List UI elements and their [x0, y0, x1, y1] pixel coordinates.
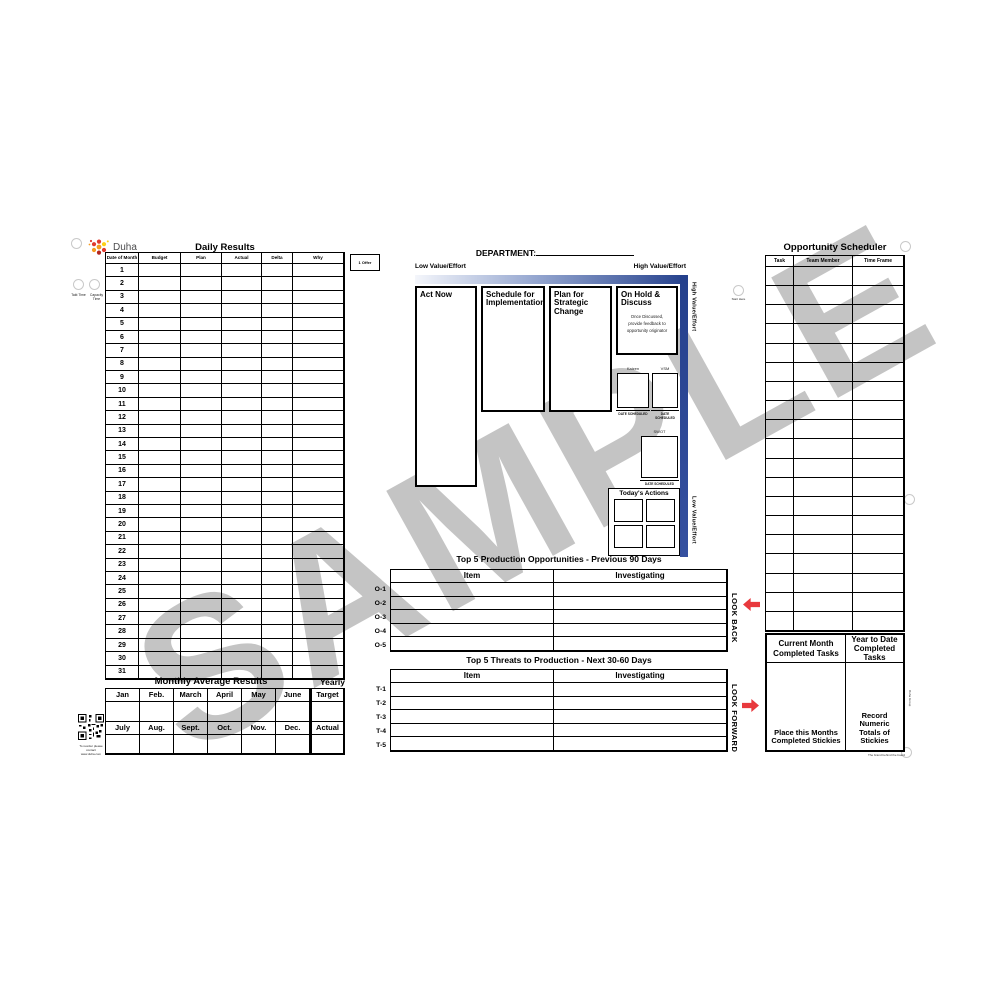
year-to-date-footer: Record Numeric Totals of Stickies — [846, 718, 903, 750]
hole-label-right: Capacity Time — [86, 293, 107, 302]
entry-cell — [181, 465, 222, 478]
entry-cell — [262, 505, 293, 518]
date-cell: 25 — [106, 585, 139, 598]
entry-cell — [181, 625, 222, 638]
date-cell: 22 — [106, 545, 139, 558]
entry-cell — [766, 439, 794, 458]
entry-cell — [222, 599, 262, 612]
entry-cell — [293, 451, 344, 464]
entry-cell — [293, 625, 344, 638]
entry-cell — [853, 382, 904, 401]
entry-cell — [139, 652, 181, 665]
entry-cell — [222, 612, 262, 625]
entry-cell — [293, 291, 344, 304]
date-cell: 5 — [106, 318, 139, 331]
entry-cell — [853, 516, 904, 535]
target-header: Target — [310, 689, 344, 702]
todays-actions-panel: Today's Actions — [608, 488, 680, 556]
entry-cell — [222, 585, 262, 598]
scheduler-table: TaskTeam MemberTime Frame — [765, 255, 905, 632]
swot-label: SWOT — [640, 430, 679, 434]
sample-board-page: SAMPLE Duha Daily Results Date of MonthB… — [0, 0, 1000, 1000]
entry-cell — [262, 304, 293, 317]
entry-cell — [853, 363, 904, 382]
high-value-effort-label: High Value/Effort — [540, 264, 686, 271]
entry-cell — [554, 637, 727, 651]
entry-cell — [853, 344, 904, 363]
entry-cell — [106, 702, 140, 722]
entry-cell — [174, 735, 208, 754]
threats-table: ItemInvestigating — [390, 669, 728, 752]
entry-cell — [222, 277, 262, 290]
entry-cell — [262, 518, 293, 531]
entry-cell — [139, 425, 181, 438]
month-header: June — [276, 689, 310, 702]
entry-cell — [181, 371, 222, 384]
entry-cell — [222, 518, 262, 531]
date-cell: 28 — [106, 625, 139, 638]
threats-title: Top 5 Threats to Production - Next 30-60… — [390, 656, 728, 665]
entry-cell — [181, 264, 222, 277]
entry-cell — [293, 532, 344, 545]
entry-cell — [262, 277, 293, 290]
action-slot — [646, 499, 675, 522]
year-to-date-header: Year to Date Completed Tasks — [846, 635, 903, 663]
entry-cell — [181, 344, 222, 357]
entry-cell — [853, 478, 904, 497]
entry-cell — [222, 451, 262, 464]
department-blank-line — [536, 247, 634, 256]
entry-cell — [262, 572, 293, 585]
column-header: Why — [293, 253, 344, 264]
entry-cell — [222, 559, 262, 572]
entry-cell — [293, 438, 344, 451]
entry-cell — [391, 724, 554, 738]
offer-box-label: 1 Offer — [359, 260, 372, 265]
entry-cell — [276, 702, 310, 722]
entry-cell — [293, 277, 344, 290]
entry-cell — [262, 384, 293, 397]
date-cell: 7 — [106, 344, 139, 357]
entry-cell — [181, 478, 222, 491]
entry-cell — [222, 411, 262, 424]
date-cell: 1 — [106, 264, 139, 277]
action-slot — [646, 525, 675, 548]
entry-cell — [554, 697, 727, 711]
date-cell: 16 — [106, 465, 139, 478]
date-cell: 30 — [106, 652, 139, 665]
row-label: T-4 — [366, 724, 386, 738]
hole-punch — [904, 494, 915, 505]
date-cell: 17 — [106, 478, 139, 491]
entry-cell — [181, 331, 222, 344]
entry-cell — [293, 599, 344, 612]
entry-cell — [222, 304, 262, 317]
entry-cell — [181, 304, 222, 317]
entry-cell — [293, 505, 344, 518]
entry-cell — [139, 518, 181, 531]
hole-punch — [89, 279, 100, 290]
entry-cell — [766, 535, 794, 554]
entry-cell — [181, 612, 222, 625]
date-cell: 23 — [106, 559, 139, 572]
entry-cell — [181, 451, 222, 464]
yearly-label: Yearly — [313, 677, 345, 687]
investigating-column-header: Investigating — [554, 570, 727, 583]
entry-cell — [174, 702, 208, 722]
monthly-average-title: Monthly Average Results — [105, 677, 317, 687]
qr-code-icon — [78, 714, 104, 740]
entry-cell — [139, 291, 181, 304]
entry-cell — [222, 358, 262, 371]
entry-cell — [181, 599, 222, 612]
entry-cell — [139, 438, 181, 451]
entry-cell — [794, 420, 853, 439]
entry-cell — [181, 572, 222, 585]
effort-vertical-bar — [680, 275, 688, 557]
entry-cell — [222, 505, 262, 518]
swot-date-scheduled: DATE SCHEDULED — [640, 480, 679, 486]
entry-cell — [276, 735, 310, 754]
actual-header: Actual — [310, 722, 344, 735]
entry-cell — [222, 425, 262, 438]
swot-box — [641, 436, 678, 478]
entry-cell — [139, 612, 181, 625]
column-header: Date of Month — [106, 253, 139, 264]
entry-cell — [293, 344, 344, 357]
entry-cell — [293, 371, 344, 384]
entry-cell — [139, 451, 181, 464]
kaizen-box — [617, 373, 649, 408]
entry-cell — [794, 286, 853, 305]
column-header: Plan — [181, 253, 222, 264]
entry-cell — [181, 384, 222, 397]
vsm-box — [652, 373, 678, 408]
daily-results-table: Date of MonthBudgetPlanActualDeltaWhy123… — [105, 252, 345, 680]
entry-cell — [262, 625, 293, 638]
entry-cell — [766, 497, 794, 516]
threats-row-labels: T-1T-2T-3T-4T-5 — [366, 682, 386, 752]
date-cell: 19 — [106, 505, 139, 518]
entry-cell — [262, 331, 293, 344]
entry-cell — [139, 572, 181, 585]
row-label: T-3 — [366, 710, 386, 724]
entry-cell — [139, 304, 181, 317]
date-cell: 26 — [106, 599, 139, 612]
entry-cell — [222, 625, 262, 638]
entry-cell — [853, 574, 904, 593]
month-header: April — [208, 689, 242, 702]
entry-cell — [262, 344, 293, 357]
hole-punch — [733, 285, 744, 296]
entry-cell — [794, 459, 853, 478]
month-header: Oct. — [208, 722, 242, 735]
entry-cell — [181, 411, 222, 424]
entry-cell — [262, 291, 293, 304]
look-back-arrow-icon — [743, 598, 760, 611]
current-month-area — [767, 663, 846, 718]
entry-cell — [181, 358, 222, 371]
entry-cell — [222, 344, 262, 357]
entry-cell — [222, 438, 262, 451]
entry-cell — [794, 305, 853, 324]
entry-cell — [766, 344, 794, 363]
entry-cell — [222, 331, 262, 344]
quadrant-act-now: Act Now — [415, 286, 477, 487]
opportunities-table: ItemInvestigating — [390, 569, 728, 652]
month-header: Aug. — [140, 722, 174, 735]
row-label: O-5 — [366, 638, 386, 652]
entry-cell — [766, 574, 794, 593]
row-label: O-2 — [366, 596, 386, 610]
entry-cell — [766, 305, 794, 324]
entry-cell — [794, 554, 853, 573]
month-header: July — [106, 722, 140, 735]
quadrant-schedule: Schedule for Implementation — [481, 286, 545, 412]
vsm-date-scheduled: DATE SCHEDULED — [651, 410, 679, 420]
date-cell: 12 — [106, 411, 139, 424]
entry-cell — [140, 702, 174, 722]
year-to-date-area — [846, 663, 903, 718]
entry-cell — [794, 324, 853, 343]
entry-cell — [554, 583, 727, 597]
entry-cell — [853, 612, 904, 631]
entry-cell — [222, 532, 262, 545]
entry-cell — [222, 572, 262, 585]
entry-cell — [139, 532, 181, 545]
column-header: Budget — [139, 253, 181, 264]
entry-cell — [139, 264, 181, 277]
entry-cell — [222, 465, 262, 478]
quadrant-plan-title: Plan for Strategic Change — [554, 291, 607, 316]
entry-cell — [222, 384, 262, 397]
row-label: T-2 — [366, 696, 386, 710]
entry-cell — [293, 559, 344, 572]
date-cell: 20 — [106, 518, 139, 531]
entry-cell — [293, 304, 344, 317]
offer-box: 1 Offer — [350, 254, 380, 271]
entry-cell — [766, 612, 794, 631]
column-header: Time Frame — [853, 256, 904, 267]
entry-cell — [293, 545, 344, 558]
month-header: March — [174, 689, 208, 702]
hole-punch — [73, 279, 84, 290]
entry-cell — [140, 735, 174, 754]
entry-cell — [181, 398, 222, 411]
quadrant-on-hold-note: Once Discussed, provide feedback to oppo… — [621, 313, 673, 335]
entry-cell — [139, 639, 181, 652]
entry-cell — [262, 478, 293, 491]
entry-cell — [853, 305, 904, 324]
department-label: DEPARTMENT: — [476, 248, 536, 258]
entry-cell — [391, 624, 554, 638]
opportunities-title: Top 5 Production Opportunities - Previou… — [390, 555, 728, 564]
quadrant-act-now-title: Act Now — [420, 291, 472, 299]
date-cell: 11 — [106, 398, 139, 411]
action-slot — [614, 525, 643, 548]
entry-cell — [766, 516, 794, 535]
entry-cell — [293, 652, 344, 665]
low-value-effort-label: Low Value/Effort — [415, 264, 466, 271]
date-cell: 6 — [106, 331, 139, 344]
entry-cell — [181, 492, 222, 505]
entry-cell — [222, 652, 262, 665]
quadrant-plan: Plan for Strategic Change — [549, 286, 612, 412]
kaizen-label: Kaizen — [616, 367, 650, 371]
entry-cell — [794, 574, 853, 593]
opportunities-row-labels: O-1O-2O-3O-4O-5 — [366, 582, 386, 652]
entry-cell — [262, 612, 293, 625]
entry-cell — [139, 318, 181, 331]
entry-cell — [181, 505, 222, 518]
entry-cell — [794, 344, 853, 363]
entry-cell — [766, 324, 794, 343]
row-label: O-4 — [366, 624, 386, 638]
side-high-value-label: High Value/Effort — [690, 282, 696, 334]
entry-cell — [262, 318, 293, 331]
date-cell: 24 — [106, 572, 139, 585]
date-cell: 29 — [106, 639, 139, 652]
row-label: T-1 — [366, 682, 386, 696]
entry-cell — [262, 358, 293, 371]
entry-cell — [391, 610, 554, 624]
entry-cell — [391, 683, 554, 697]
entry-cell — [794, 267, 853, 286]
entry-cell — [262, 492, 293, 505]
entry-cell — [794, 516, 853, 535]
entry-cell — [766, 401, 794, 420]
entry-cell — [853, 554, 904, 573]
entry-cell — [262, 425, 293, 438]
entry-cell — [222, 545, 262, 558]
month-header: Jan — [106, 689, 140, 702]
entry-cell — [181, 291, 222, 304]
month-header: Dec. — [276, 722, 310, 735]
entry-cell — [262, 438, 293, 451]
entry-cell — [391, 710, 554, 724]
entry-cell — [139, 505, 181, 518]
entry-cell — [139, 625, 181, 638]
date-cell: 4 — [106, 304, 139, 317]
entry-cell — [181, 532, 222, 545]
month-header: May — [242, 689, 276, 702]
entry-cell — [139, 358, 181, 371]
entry-cell — [853, 286, 904, 305]
current-month-header: Current Month Completed Tasks — [767, 635, 846, 663]
entry-cell — [853, 535, 904, 554]
row-label: O-1 — [366, 582, 386, 596]
entry-cell — [181, 639, 222, 652]
entry-cell — [554, 724, 727, 738]
bottom-note: The brand behind the board — [800, 754, 905, 757]
entry-cell — [310, 702, 344, 722]
entry-cell — [222, 291, 262, 304]
entry-cell — [554, 597, 727, 611]
item-column-header: Item — [391, 670, 554, 683]
entry-cell — [208, 702, 242, 722]
entry-cell — [554, 683, 727, 697]
department-line: DEPARTMENT: — [430, 243, 680, 261]
entry-cell — [853, 401, 904, 420]
current-month-footer: Place this Months Completed Stickies — [767, 718, 846, 750]
date-cell: 27 — [106, 612, 139, 625]
entry-cell — [222, 264, 262, 277]
entry-cell — [222, 639, 262, 652]
entry-cell — [293, 358, 344, 371]
entry-cell — [139, 545, 181, 558]
entry-cell — [181, 438, 222, 451]
start-here-label: Start Here — [729, 298, 748, 302]
entry-cell — [391, 583, 554, 597]
action-slot — [614, 499, 643, 522]
look-forward-arrow-icon — [742, 699, 759, 712]
entry-cell — [293, 639, 344, 652]
entry-cell — [139, 411, 181, 424]
entry-cell — [310, 735, 344, 754]
entry-cell — [293, 331, 344, 344]
todays-actions-grid — [609, 499, 679, 548]
row-label: O-3 — [366, 610, 386, 624]
entry-cell — [293, 318, 344, 331]
entry-cell — [794, 593, 853, 612]
entry-cell — [222, 398, 262, 411]
entry-cell — [853, 324, 904, 343]
row-label: T-5 — [366, 738, 386, 752]
entry-cell — [794, 401, 853, 420]
entry-cell — [139, 492, 181, 505]
entry-cell — [766, 286, 794, 305]
column-header: Delta — [262, 253, 293, 264]
column-header: Task — [766, 256, 794, 267]
scheduler-title: Opportunity Scheduler — [765, 243, 905, 253]
todays-actions-title: Today's Actions — [609, 490, 679, 497]
entry-cell — [181, 545, 222, 558]
side-note: Duha Group — [908, 690, 911, 706]
entry-cell — [794, 497, 853, 516]
entry-cell — [853, 459, 904, 478]
date-cell: 9 — [106, 371, 139, 384]
entry-cell — [139, 478, 181, 491]
entry-cell — [181, 425, 222, 438]
entry-cell — [222, 371, 262, 384]
value-gradient-bar — [415, 275, 688, 284]
entry-cell — [293, 411, 344, 424]
entry-cell — [242, 735, 276, 754]
entry-cell — [262, 451, 293, 464]
entry-cell — [181, 518, 222, 531]
entry-cell — [853, 420, 904, 439]
entry-cell — [794, 439, 853, 458]
date-cell: 10 — [106, 384, 139, 397]
entry-cell — [262, 545, 293, 558]
entry-cell — [139, 559, 181, 572]
entry-cell — [139, 465, 181, 478]
entry-cell — [139, 398, 181, 411]
entry-cell — [293, 492, 344, 505]
entry-cell — [181, 318, 222, 331]
entry-cell — [262, 264, 293, 277]
date-cell: 14 — [106, 438, 139, 451]
vsm-label: VSM — [651, 367, 679, 371]
entry-cell — [106, 735, 140, 754]
entry-cell — [181, 559, 222, 572]
entry-cell — [139, 277, 181, 290]
quadrant-on-hold-title: On Hold & Discuss — [621, 291, 673, 308]
completed-tasks-panel: Current Month Completed Tasks Year to Da… — [765, 633, 905, 752]
entry-cell — [794, 478, 853, 497]
entry-cell — [794, 363, 853, 382]
qr-caption-line2: www.duha.com — [78, 753, 104, 757]
